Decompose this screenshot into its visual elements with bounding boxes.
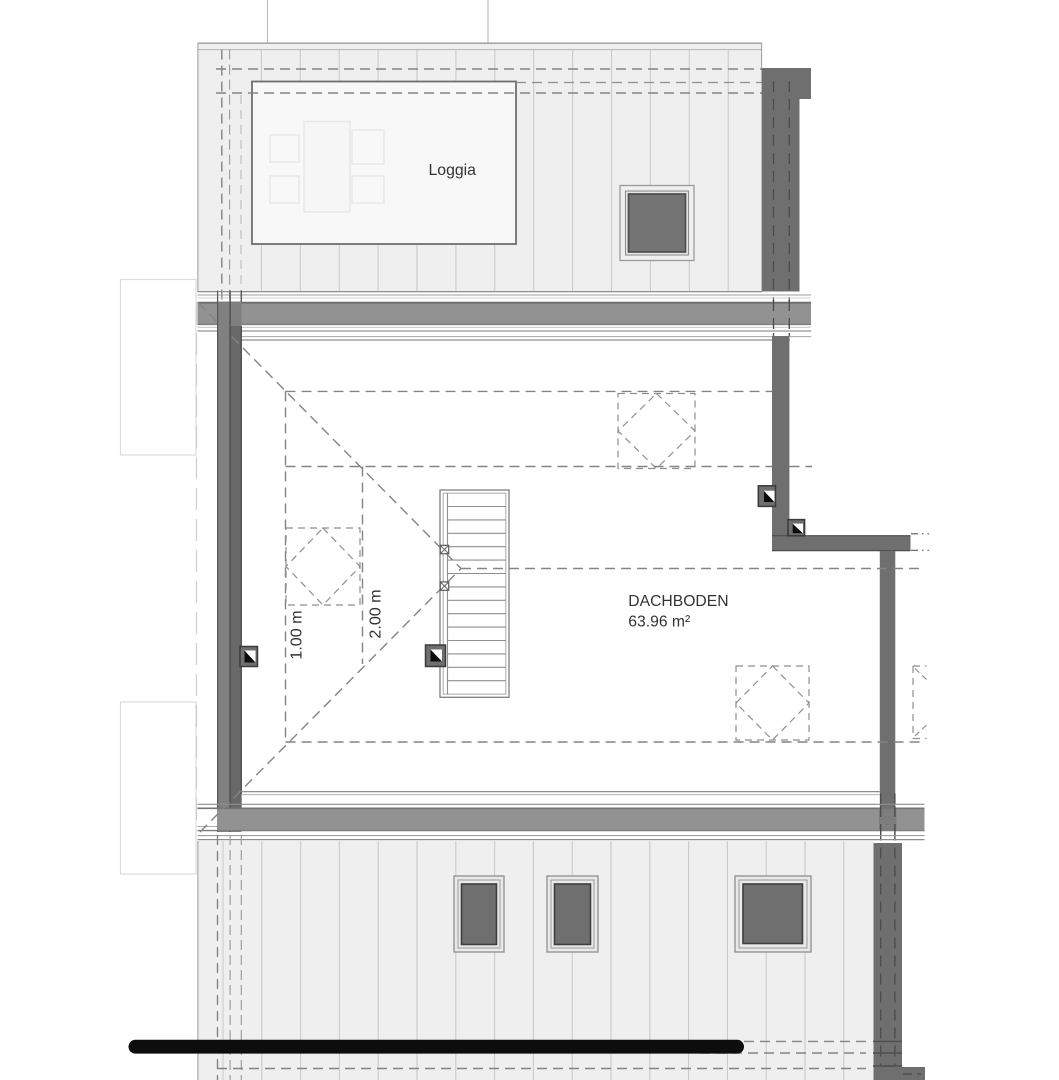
svg-text:2.00 m: 2.00 m [367, 589, 385, 638]
svg-text:63.96 m²: 63.96 m² [628, 614, 690, 631]
svg-text:DACHBODEN: DACHBODEN [628, 593, 728, 610]
svg-text:1.00 m: 1.00 m [288, 610, 306, 659]
svg-text:Loggia: Loggia [429, 162, 477, 179]
